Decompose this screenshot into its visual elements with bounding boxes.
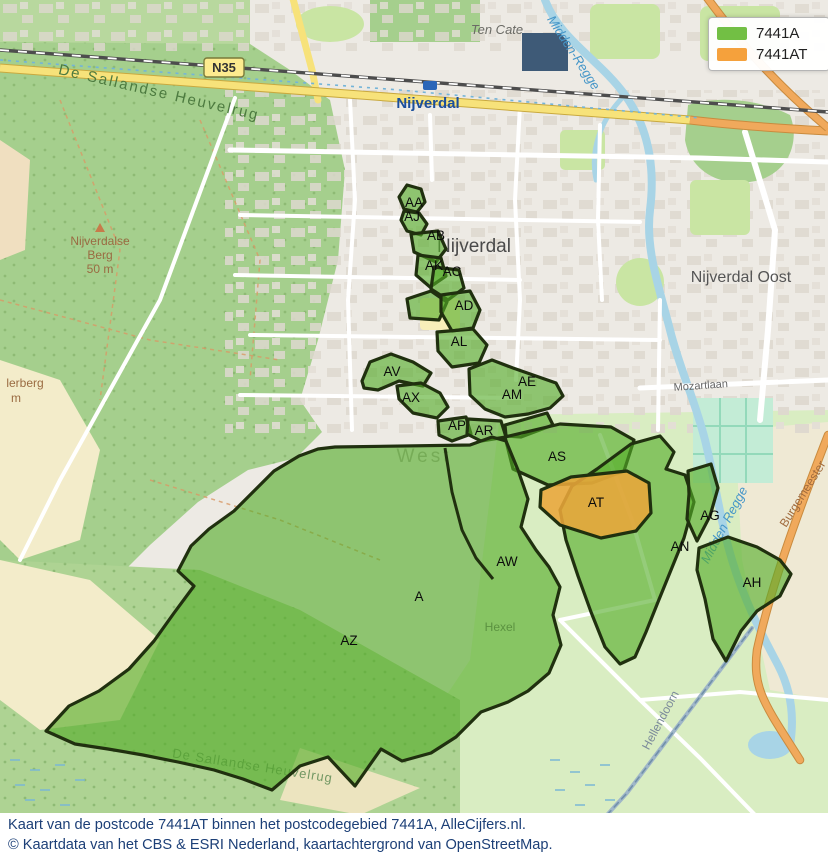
legend-label: 7441AT (756, 46, 807, 63)
region-label-AA: AA (405, 195, 423, 210)
region-label-AC: AC (443, 264, 462, 279)
map-screenshot: De Sallandse HeuvelrugNijverdalseBerg50 … (0, 0, 828, 861)
region-label-AH: AH (743, 575, 762, 590)
map-legend: 7441A 7441AT (708, 17, 828, 71)
map-label-nijverdal: Nijverdal (437, 236, 511, 257)
legend-row-7441AT: 7441AT (717, 44, 821, 65)
region-label-AZ: AZ (340, 633, 357, 648)
legend-row-7441A: 7441A (717, 23, 821, 44)
map-label-nijverdal-oost: Nijverdal Oost (691, 269, 792, 286)
region-label-AS: AS (548, 449, 566, 464)
region-label-AG: AG (700, 508, 720, 523)
n35-road-badge: N35 (204, 58, 244, 77)
map-label-50-m: 50 m (87, 262, 114, 276)
caption-line-1: Kaart van de postcode 7441AT binnen het … (8, 815, 820, 835)
legend-swatch-orange (717, 48, 747, 61)
region-label-AJ: AJ (404, 209, 420, 224)
map-label-ten-cate: Ten Cate (471, 22, 523, 37)
map-canvas[interactable]: De Sallandse HeuvelrugNijverdalseBerg50 … (0, 0, 828, 815)
region-label-AX: AX (402, 390, 420, 405)
region-label-AB: AB (427, 228, 445, 243)
region-label-A: A (414, 589, 423, 604)
legend-swatch-green (717, 27, 747, 40)
map-label-berg: Berg (87, 248, 112, 262)
map-label-lerberg: lerberg (6, 376, 43, 390)
region-label-AT: AT (588, 495, 604, 510)
region-label-AM: AM (502, 387, 522, 402)
region-label-AL: AL (451, 334, 468, 349)
caption-line-2: © Kaartdata van het CBS & ESRI Nederland… (8, 835, 820, 855)
map-label-nijverdalse: Nijverdalse (70, 234, 130, 248)
map-caption: Kaart van de postcode 7441AT binnen het … (0, 813, 828, 861)
train-station-icon (423, 81, 437, 90)
map-label-m: m (11, 391, 21, 405)
region-label-AN: AN (671, 539, 690, 554)
region-label-AD: AD (455, 298, 474, 313)
region-label-AV: AV (383, 364, 400, 379)
legend-label: 7441A (756, 25, 799, 42)
region-label-AK: AK (425, 258, 443, 273)
region-label-AP: AP (448, 418, 466, 433)
region-label-AW: AW (496, 554, 518, 569)
n35-badge-text: N35 (212, 60, 236, 75)
region-label-AR: AR (475, 423, 494, 438)
map-label-nijverdal: Nijverdal (396, 95, 459, 112)
